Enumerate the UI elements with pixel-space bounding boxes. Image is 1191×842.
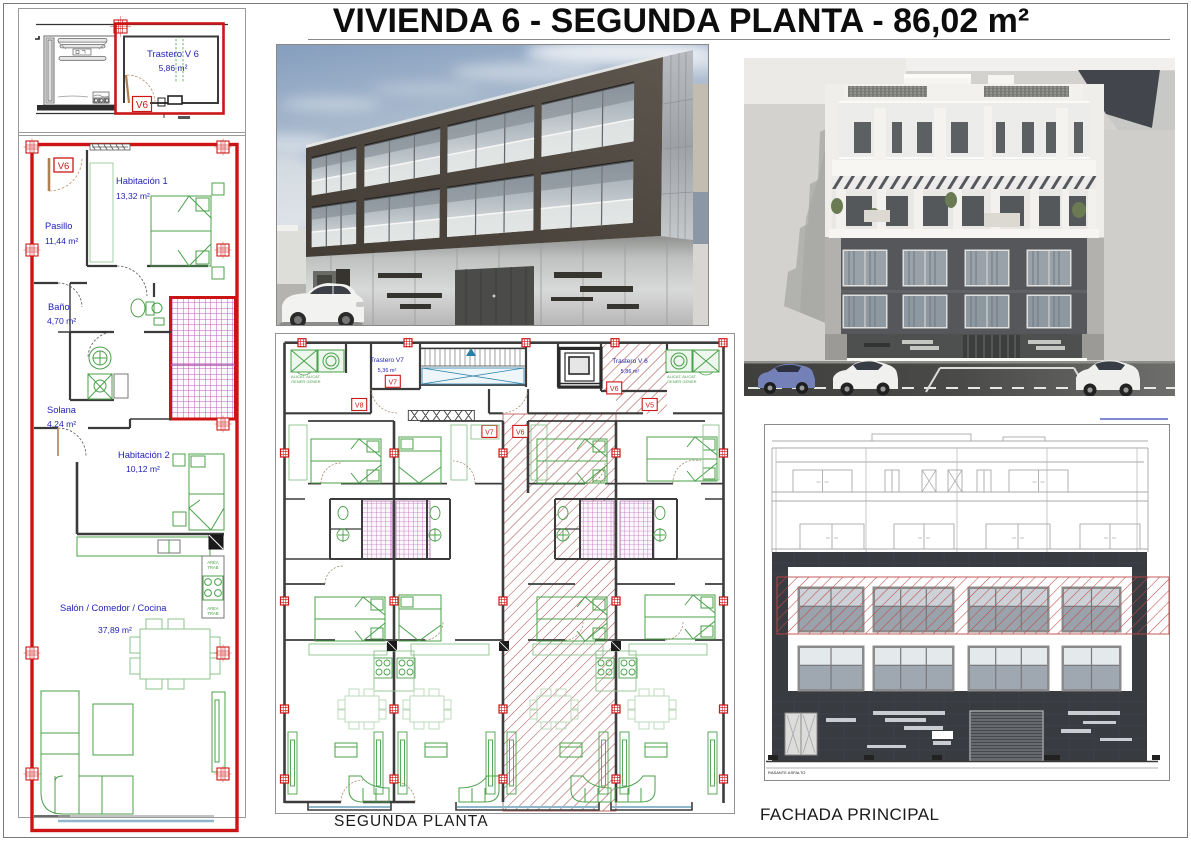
svg-text:37,89 m²: 37,89 m² <box>98 625 132 635</box>
svg-text:5,36 m²: 5,36 m² <box>378 368 397 374</box>
svg-text:TRAB: TRAB <box>207 611 218 616</box>
svg-text:Trastero V 6: Trastero V 6 <box>147 49 199 60</box>
svg-text:10,12 m²: 10,12 m² <box>126 464 160 474</box>
svg-text:11,44 m²: 11,44 m² <box>45 236 78 246</box>
svg-text:Pasillo: Pasillo <box>45 221 72 231</box>
svg-text:4,70 m²: 4,70 m² <box>47 316 76 326</box>
svg-text:V6: V6 <box>610 386 619 393</box>
svg-text:V6: V6 <box>516 430 525 437</box>
svg-text:Habitación 2: Habitación 2 <box>118 450 170 460</box>
svg-text:Trastero V7: Trastero V7 <box>370 357 404 364</box>
svg-text:V7: V7 <box>485 430 494 437</box>
svg-text:5,86 m²: 5,86 m² <box>159 63 188 73</box>
svg-text:V8: V8 <box>355 403 364 410</box>
svg-text:Habitación 1: Habitación 1 <box>116 176 168 186</box>
svg-text:GENER GENER: GENER GENER <box>667 379 697 384</box>
svg-text:5,86 m²: 5,86 m² <box>621 369 640 375</box>
svg-text:13,32 m²: 13,32 m² <box>116 191 150 201</box>
svg-text:TRAB: TRAB <box>207 565 218 570</box>
svg-text:GENER GENER: GENER GENER <box>291 379 321 384</box>
svg-text:V5: V5 <box>645 403 654 410</box>
svg-text:4,24 m²: 4,24 m² <box>47 419 76 429</box>
svg-text:Salón / Comedor / Cocina: Salón / Comedor / Cocina <box>60 603 167 613</box>
svg-text:Trastero V 6: Trastero V 6 <box>612 358 648 365</box>
svg-text:V7: V7 <box>389 380 398 387</box>
svg-text:V6: V6 <box>136 100 149 111</box>
svg-text:Baño: Baño <box>48 302 70 312</box>
svg-text:RASANTE ASFALTO: RASANTE ASFALTO <box>768 770 805 775</box>
svg-text:Solana: Solana <box>47 405 77 415</box>
svg-text:V6: V6 <box>58 161 70 172</box>
